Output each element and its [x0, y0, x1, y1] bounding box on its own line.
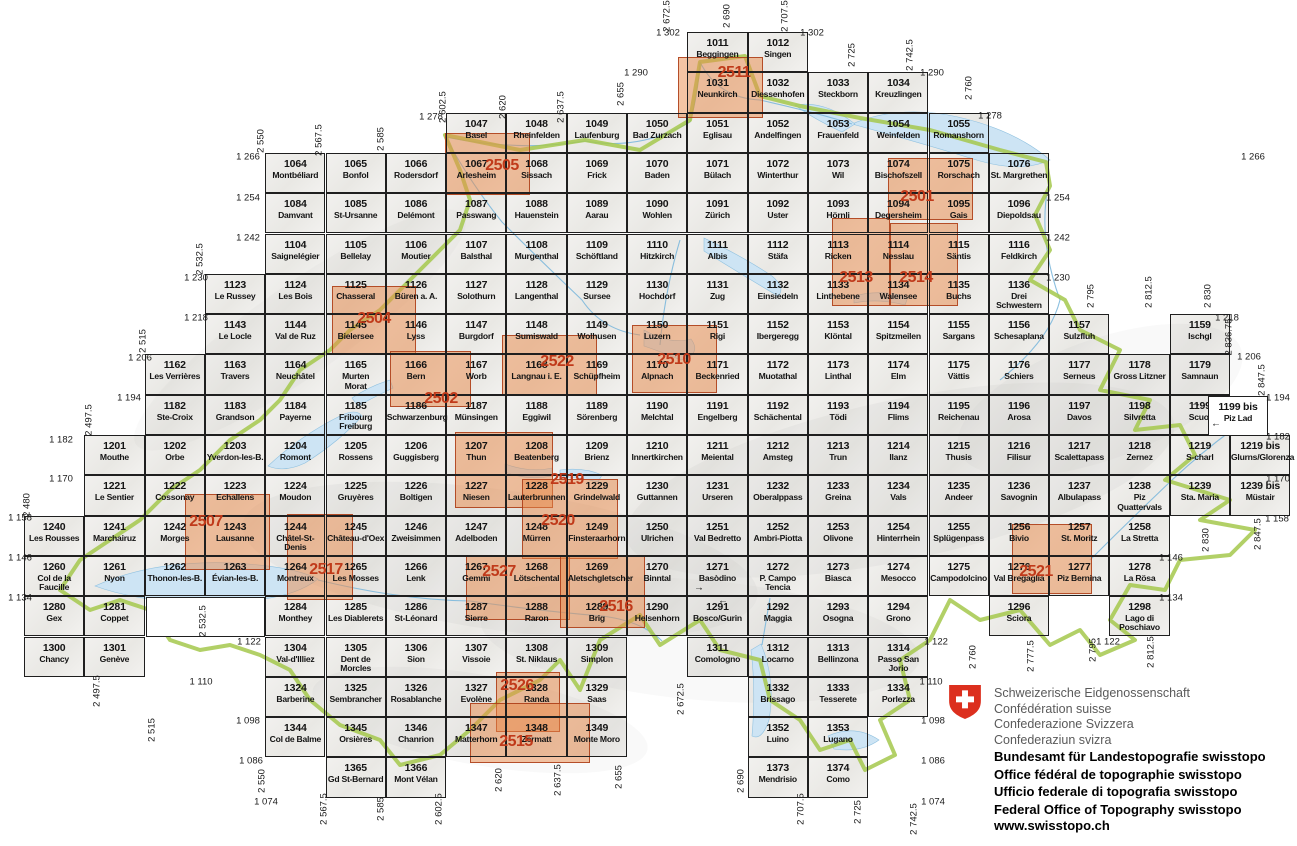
- map-sheet-cell[interactable]: 1274Mesocco: [868, 556, 928, 596]
- sheet-number: 1280: [25, 602, 83, 613]
- sheet-number: 1274: [869, 562, 927, 573]
- sheet-number: 1254: [869, 522, 927, 533]
- map-sheet-cell[interactable]: 1092Uster: [748, 193, 808, 233]
- map-sheet-cell[interactable]: 1296Sciora: [989, 596, 1049, 636]
- sheet-name: Hörnli: [809, 211, 867, 220]
- map-sheet-cell[interactable]: 1217Scalettapass: [1049, 435, 1109, 475]
- map-sheet-cell[interactable]: 1294Grono: [868, 596, 928, 636]
- map-sheet-cell[interactable]: 1165Murten Morat: [326, 354, 386, 394]
- easting-coordinate-label: 2 830: [1201, 528, 1212, 552]
- map-sheet-cell[interactable]: 1172Muotathal: [748, 354, 808, 394]
- map-sheet-cell[interactable]: 1093Hörnli: [808, 193, 868, 233]
- sheet-name: Neunkirch: [688, 90, 746, 99]
- map-sheet-cell[interactable]: 1288Raron: [506, 596, 566, 636]
- map-sheet-cell[interactable]: 1072Winterthur: [748, 153, 808, 193]
- map-sheet-cell[interactable]: 1127Solothurn: [446, 274, 506, 314]
- map-sheet-cell[interactable]: 1253Olivone: [808, 516, 868, 556]
- map-sheet-cell[interactable]: 1258La Stretta: [1109, 516, 1169, 556]
- map-sheet-cell[interactable]: 1203Yverdon-les-B.: [205, 435, 265, 475]
- map-sheet-cell[interactable]: 1231Urseren: [687, 475, 747, 515]
- map-sheet-cell[interactable]: 1125Chasseral: [326, 274, 386, 314]
- map-sheet-cell[interactable]: 1262Thonon-les-B.: [145, 556, 205, 596]
- map-sheet-cell[interactable]: 1239Sta. Maria: [1170, 475, 1230, 515]
- sheet-name: Rigi: [688, 332, 746, 341]
- map-sheet-cell[interactable]: 1086Delémont: [386, 193, 446, 233]
- map-sheet-cell[interactable]: 1136Drei Schwestern: [989, 274, 1049, 314]
- map-sheet-cell[interactable]: 1184Payerne: [265, 395, 325, 435]
- sheet-number: 1130: [628, 280, 686, 291]
- map-sheet-cell[interactable]: 1374Como: [808, 757, 868, 797]
- map-sheet-cell[interactable]: 1166Bern: [386, 354, 446, 394]
- sheet-name: Langenthal: [507, 292, 565, 301]
- map-sheet-cell[interactable]: 1210Innertkirchen: [627, 435, 687, 475]
- map-sheet-cell[interactable]: 1154Spitzmeilen: [868, 314, 928, 354]
- map-sheet-cell[interactable]: 1246Zweisimmen: [386, 516, 446, 556]
- map-sheet-cell[interactable]: 1293Osogna: [808, 596, 868, 636]
- sheet-number: 1270: [628, 562, 686, 573]
- map-sheet-cell[interactable]: 1226Boltigen: [386, 475, 446, 515]
- map-sheet-cell[interactable]: 1128Langenthal: [506, 274, 566, 314]
- sheet-number: 1333: [809, 683, 867, 694]
- map-sheet-cell[interactable]: 1174Elm: [868, 354, 928, 394]
- map-sheet-cell[interactable]: 1307Vissoie: [446, 637, 506, 677]
- map-sheet-cell[interactable]: 1255Splügenpass: [929, 516, 989, 556]
- map-sheet-cell[interactable]: 1198Silvretta: [1109, 395, 1169, 435]
- map-sheet-cell[interactable]: 1309Simplon: [567, 637, 627, 677]
- sheet-name: Sembrancher: [327, 695, 385, 704]
- sheet-number: 1146: [387, 320, 445, 331]
- sheet-name: Chancy: [25, 655, 83, 664]
- map-sheet-cell[interactable]: 1178Gross Litzner: [1109, 354, 1169, 394]
- sheet-name: Worb: [447, 372, 505, 381]
- map-sheet-cell[interactable]: 1292Maggia: [748, 596, 808, 636]
- sheet-name: Glurns/Glorenza: [1231, 453, 1289, 462]
- map-sheet-cell[interactable]: 1191Engelberg: [687, 395, 747, 435]
- map-sheet-cell[interactable]: 1275Campodolcino: [929, 556, 989, 596]
- sheet-name: Schächental: [749, 413, 807, 422]
- map-sheet-cell[interactable]: 1112Stäfa: [748, 234, 808, 274]
- sheet-name: Wil: [809, 171, 867, 180]
- map-sheet-cell[interactable]: 1312Locarno: [748, 637, 808, 677]
- map-sheet-cell[interactable]: 1308St. Niklaus: [506, 637, 566, 677]
- sheet-name: Laufenburg: [568, 131, 626, 140]
- map-sheet-cell[interactable]: 1269Aletschgletscher: [567, 556, 627, 596]
- map-sheet-cell[interactable]: 1115Säntis: [929, 234, 989, 274]
- map-sheet-cell[interactable]: 1195Reichenau: [929, 395, 989, 435]
- map-sheet-cell[interactable]: 1366Mont Vélan: [386, 757, 446, 797]
- map-sheet-cell[interactable]: 1327Evolène: [446, 677, 506, 717]
- easting-coordinate-label: 2 672.5: [676, 683, 687, 715]
- map-sheet-cell[interactable]: 1222Cossonay: [145, 475, 205, 515]
- map-sheet-cell[interactable]: 1233Greina: [808, 475, 868, 515]
- map-sheet-cell[interactable]: 1193Tödi: [808, 395, 868, 435]
- map-sheet-cell[interactable]: 1131Zug: [687, 274, 747, 314]
- sheet-name: Grindelwald: [568, 493, 626, 502]
- map-sheet-cell[interactable]: 1216Filisur: [989, 435, 1049, 475]
- map-sheet-cell[interactable]: 1110Hitzkirch: [627, 234, 687, 274]
- map-sheet-cell[interactable]: 1329Saas: [567, 677, 627, 717]
- sheet-name: Bad Zurzach: [628, 131, 686, 140]
- map-sheet-cell[interactable]: 1211Meiental: [687, 435, 747, 475]
- map-sheet-cell[interactable]: 1236Savognin: [989, 475, 1049, 515]
- map-sheet-cell[interactable]: 1260Col de la Faucille: [24, 556, 84, 596]
- swisstopo-url[interactable]: www.swisstopo.ch: [994, 818, 1110, 833]
- map-sheet-cell[interactable]: 1095Gais: [929, 193, 989, 233]
- map-sheet-cell[interactable]: 1325Sembrancher: [326, 677, 386, 717]
- map-sheet-cell[interactable]: 1349Monte Moro: [567, 717, 627, 757]
- map-sheet-cell[interactable]: 1065Bonfol: [326, 153, 386, 193]
- map-sheet-cell[interactable]: 1091Zürich: [687, 193, 747, 233]
- map-sheet-cell[interactable]: 1251Val Bedretto: [687, 516, 747, 556]
- map-sheet-cell[interactable]: 1247Adelboden: [446, 516, 506, 556]
- map-sheet-cell[interactable]: 1353Lugano: [808, 717, 868, 757]
- map-sheet-cell[interactable]: 1049Laufenburg: [567, 113, 627, 153]
- sheet-name: Nyon: [85, 574, 143, 583]
- map-sheet-cell[interactable]: 1176Schiers: [989, 354, 1049, 394]
- map-sheet-cell[interactable]: 1183Grandson: [205, 395, 265, 435]
- composite-sheet-number[interactable]: 2507: [189, 513, 223, 531]
- map-sheet-cell[interactable]: 1052Andelfingen: [748, 113, 808, 153]
- sheet-number: 1288: [507, 602, 565, 613]
- sheet-name: Neuchâtel: [266, 372, 324, 381]
- map-sheet-cell[interactable]: 1124Les Bois: [265, 274, 325, 314]
- map-sheet-cell[interactable]: 1272P. Campo Tencia: [748, 556, 808, 596]
- map-sheet-cell[interactable]: 1273Biasca: [808, 556, 868, 596]
- map-sheet-cell[interactable]: 1245Château-d'Oex: [326, 516, 386, 556]
- composite-sheet-number[interactable]: 2504: [357, 310, 391, 328]
- sheet-number: 1237: [1050, 481, 1108, 492]
- map-sheet-cell[interactable]: 1234Vals: [868, 475, 928, 515]
- map-sheet-cell[interactable]: 1051Eglisau: [687, 113, 747, 153]
- map-sheet-cell[interactable]: 1313Bellinzona: [808, 637, 868, 677]
- map-sheet-cell[interactable]: 1177Serneus: [1049, 354, 1109, 394]
- composite-sheet-number[interactable]: 2527: [482, 563, 516, 581]
- sheet-name: Ricken: [809, 252, 867, 261]
- map-sheet-cell[interactable]: 1163Travers: [205, 354, 265, 394]
- map-sheet-cell[interactable]: 1104Saignelégier: [265, 234, 325, 274]
- map-sheet-cell[interactable]: 1088Hauenstein: [506, 193, 566, 233]
- map-sheet-cell[interactable]: 1196Arosa: [989, 395, 1049, 435]
- map-sheet-cell[interactable]: 1146Lyss: [386, 314, 446, 354]
- map-sheet-cell-offset[interactable]: 1199 bisPiz Lad: [1208, 396, 1268, 436]
- sheet-number: 1184: [266, 401, 324, 412]
- map-sheet-cell[interactable]: 1218Zernez: [1109, 435, 1169, 475]
- map-sheet-cell[interactable]: 1344Col de Balme: [265, 717, 325, 757]
- map-sheet-cell[interactable]: 1190Melchtal: [627, 395, 687, 435]
- map-sheet-cell[interactable]: 1155Sargans: [929, 314, 989, 354]
- map-sheet-cell[interactable]: 1232Oberalppass: [748, 475, 808, 515]
- sheet-name: Genève: [85, 655, 143, 664]
- map-sheet-cell[interactable]: 1173Linthal: [808, 354, 868, 394]
- map-sheet-cell[interactable]: 1352Luino: [748, 717, 808, 757]
- sheet-name: Guttannen: [628, 493, 686, 502]
- map-sheet-cell[interactable]: 1332Brissago: [748, 677, 808, 717]
- sheet-number: 1195: [930, 401, 988, 412]
- map-sheet-cell[interactable]: 1129Sursee: [567, 274, 627, 314]
- map-sheet-cell[interactable]: 1285Les Diablerets: [326, 596, 386, 636]
- sheet-number: 1325: [327, 683, 385, 694]
- sheet-name: Schwarzenburg: [387, 413, 445, 422]
- map-sheet-cell[interactable]: 1208Beatenberg: [506, 435, 566, 475]
- map-sheet-cell[interactable]: 1305Dent de Morcles: [326, 637, 386, 677]
- map-sheet-cell[interactable]: 1066Rodersdorf: [386, 153, 446, 193]
- map-sheet-cell[interactable]: 1314Passo San Jorio: [868, 637, 928, 677]
- map-sheet-cell[interactable]: 1221Le Sentier: [84, 475, 144, 515]
- map-sheet-cell[interactable]: 1106Moutier: [386, 234, 446, 274]
- map-sheet-cell[interactable]: 1147Burgdorf: [446, 314, 506, 354]
- composite-sheet-number[interactable]: 2519: [550, 471, 584, 489]
- map-sheet-cell[interactable]: 1214Ilanz: [868, 435, 928, 475]
- sheet-name: Luino: [749, 735, 807, 744]
- map-sheet-cell[interactable]: 1373Mendrisio: [748, 757, 808, 797]
- sheet-number: 1218: [1110, 441, 1168, 452]
- map-sheet-cell[interactable]: 1144Val de Ruz: [265, 314, 325, 354]
- map-sheet-cell[interactable]: 1182Ste-Croix: [145, 395, 205, 435]
- map-sheet-cell[interactable]: 1132Einsiedeln: [748, 274, 808, 314]
- map-sheet-cell[interactable]: 1126Büren a. A.: [386, 274, 446, 314]
- map-sheet-cell[interactable]: 1230Guttannen: [627, 475, 687, 515]
- northing-coordinate-label: 1 134: [8, 593, 32, 604]
- map-sheet-cell[interactable]: 1311Comologno: [687, 637, 747, 677]
- map-sheet-cell[interactable]: 1212Amsteg: [748, 435, 808, 475]
- map-sheet-cell[interactable]: 1185Fribourg Freiburg: [326, 395, 386, 435]
- composite-sheet-number[interactable]: 2520: [541, 512, 575, 530]
- map-sheet-cell[interactable]: 1238Piz Quattervals: [1109, 475, 1169, 515]
- map-sheet-cell[interactable]: 1012Singen: [748, 32, 808, 72]
- map-sheet-cell[interactable]: 1130Hochdorf: [627, 274, 687, 314]
- sheet-number: 1273: [809, 562, 867, 573]
- map-sheet-cell[interactable]: 1070Baden: [627, 153, 687, 193]
- map-sheet-cell[interactable]: 1149Wolhusen: [567, 314, 627, 354]
- map-sheet-cell[interactable]: 1073Wil: [808, 153, 868, 193]
- sheet-number: 1250: [628, 522, 686, 533]
- sheet-name: Buchs: [930, 292, 988, 301]
- sheet-number: 1106: [387, 240, 445, 251]
- composite-sheet-number[interactable]: 2516: [599, 598, 633, 616]
- map-sheet-cell[interactable]: 1270Binntal: [627, 556, 687, 596]
- sheet-number: 1155: [930, 320, 988, 331]
- map-sheet-cell[interactable]: 1266Lenk: [386, 556, 446, 596]
- map-sheet-cell[interactable]: 1213Trun: [808, 435, 868, 475]
- map-sheet-cell[interactable]: 1089Aarau: [567, 193, 627, 233]
- map-sheet-cell[interactable]: 1151Rigi: [687, 314, 747, 354]
- sheet-name: Sulzfluh: [1050, 332, 1108, 341]
- map-sheet-cell[interactable]: 1164Neuchâtel: [265, 354, 325, 394]
- map-sheet-cell[interactable]: 1244Châtel-St-Denis: [265, 516, 325, 556]
- sheet-number: 1221: [85, 481, 143, 492]
- sheet-name: Engelberg: [688, 413, 746, 422]
- sheet-name: Rheinfelden: [507, 131, 565, 140]
- map-sheet-cell[interactable]: 1281Coppet: [84, 596, 144, 636]
- map-sheet-cell[interactable]: 1123Le Russey: [205, 274, 265, 314]
- map-sheet-cell[interactable]: 1223Echallens: [205, 475, 265, 515]
- map-sheet-cell[interactable]: 1033Steckborn: [808, 72, 868, 112]
- map-sheet-cell[interactable]: 1071Bülach: [687, 153, 747, 193]
- map-sheet-cell[interactable]: 1225Gruyères: [326, 475, 386, 515]
- map-sheet-cell[interactable]: 1143Le Locle: [205, 314, 265, 354]
- map-sheet-cell[interactable]: 1109Schöftland: [567, 234, 627, 274]
- sheet-name: Sion: [387, 655, 445, 664]
- map-sheet-cell[interactable]: 1179Samnaun: [1170, 354, 1230, 394]
- composite-sheet-number[interactable]: 2522: [540, 353, 574, 371]
- northing-coordinate-label: 1 146: [8, 553, 32, 564]
- map-sheet-index: Schweizerische Eidgenossenschaft Confédé…: [0, 0, 1297, 846]
- map-sheet-cell[interactable]: 1324Barberine: [265, 677, 325, 717]
- map-sheet-cell[interactable]: 1290Helsenhorn: [627, 596, 687, 636]
- map-sheet-cell[interactable]: 1188Eggiwil: [506, 395, 566, 435]
- map-sheet-cell[interactable]: 1345Orsières: [326, 717, 386, 757]
- map-sheet-cell[interactable]: 1284Monthey: [265, 596, 325, 636]
- map-sheet-cell[interactable]: 1064Montbéliard: [265, 153, 325, 193]
- map-sheet-cell[interactable]: 1085St-Ursanne: [326, 193, 386, 233]
- map-sheet-cell[interactable]: 1254Hinterrhein: [868, 516, 928, 556]
- map-sheet-cell[interactable]: 1250Ulrichen: [627, 516, 687, 556]
- sheet-number: 1109: [568, 240, 626, 251]
- map-sheet-cell[interactable]: 1252Ambri-Piotta: [748, 516, 808, 556]
- map-sheet-cell[interactable]: 1347Matterhorn: [446, 717, 506, 757]
- map-sheet-cell[interactable]: 1050Bad Zurzach: [627, 113, 687, 153]
- map-sheet-cell[interactable]: 1207Thun: [446, 435, 506, 475]
- map-sheet-cell[interactable]: 1206Guggisberg: [386, 435, 446, 475]
- sheet-extent-arrow-icon: ←: [718, 596, 728, 607]
- map-sheet-cell[interactable]: 1219S-charl: [1170, 435, 1230, 475]
- sheet-name: Le Sentier: [85, 493, 143, 502]
- sheet-number: 1074: [869, 159, 927, 170]
- northing-coordinate-label: 1 122: [924, 637, 948, 648]
- sheet-name: Piz Bernina: [1050, 574, 1108, 583]
- map-sheet-cell[interactable]: 1116Feldkirch: [989, 234, 1049, 274]
- composite-sheet-number[interactable]: 2505: [485, 157, 519, 175]
- sheet-number: 1153: [809, 320, 867, 331]
- sheet-name: Alpnach: [628, 372, 686, 381]
- map-sheet-cell[interactable]: 1304Val-d'Illiez: [265, 637, 325, 677]
- easting-coordinate-label: 2 637.5: [553, 764, 564, 796]
- map-sheet-cell[interactable]: 1162Les Verrières: [145, 354, 205, 394]
- map-sheet-cell[interactable]: 1175Vättis: [929, 354, 989, 394]
- map-sheet-cell[interactable]: 1114Nesslau: [868, 234, 928, 274]
- map-sheet-cell[interactable]: 1157Sulzfluh: [1049, 314, 1109, 354]
- map-sheet-cell[interactable]: 1227Niesen: [446, 475, 506, 515]
- map-sheet-cell[interactable]: 1249Finsteraarhorn: [567, 516, 627, 556]
- composite-sheet-number[interactable]: 2502: [424, 390, 458, 408]
- map-sheet-cell[interactable]: 1301Genève: [84, 637, 144, 677]
- map-sheet-cell[interactable]: 1333Tesserete: [808, 677, 868, 717]
- map-sheet-cell[interactable]: 1113Ricken: [808, 234, 868, 274]
- map-sheet-cell[interactable]: 1108Murgenthal: [506, 234, 566, 274]
- map-sheet-cell[interactable]: 1053Frauenfeld: [808, 113, 868, 153]
- map-sheet-cell[interactable]: 1194Flims: [868, 395, 928, 435]
- composite-sheet-number[interactable]: 2501: [900, 188, 934, 206]
- map-sheet-cell[interactable]: 1261Nyon: [84, 556, 144, 596]
- map-sheet-cell[interactable]: 1090Wohlen: [627, 193, 687, 233]
- map-sheet-cell[interactable]: 1169Schüpfheim: [567, 354, 627, 394]
- sheet-name: Zug: [688, 292, 746, 301]
- map-sheet-cell[interactable]: 1156Schesaplana: [989, 314, 1049, 354]
- sheet-name: Lauterbrunnen: [507, 493, 565, 502]
- map-sheet-cell[interactable]: 1306Sion: [386, 637, 446, 677]
- map-sheet-cell[interactable]: 1326Rosablanche: [386, 677, 446, 717]
- sheet-number: 1123: [206, 280, 264, 291]
- map-sheet-cell[interactable]: 1346Chanrion: [386, 717, 446, 757]
- sheet-number: 1206: [387, 441, 445, 452]
- map-sheet-cell[interactable]: 1300Chancy: [24, 637, 84, 677]
- map-sheet-cell[interactable]: 1171Beckenried: [687, 354, 747, 394]
- map-sheet-cell[interactable]: 1107Balsthal: [446, 234, 506, 274]
- map-sheet-cell[interactable]: 1069Frick: [567, 153, 627, 193]
- sheet-number: 1235: [930, 481, 988, 492]
- map-sheet-cell[interactable]: 1054Weinfelden: [868, 113, 928, 153]
- map-sheet-cell[interactable]: 1235Andeer: [929, 475, 989, 515]
- composite-sheet-number[interactable]: 2514: [899, 269, 933, 287]
- map-sheet-cell[interactable]: 1201Mouthe: [84, 435, 144, 475]
- map-sheet-cell[interactable]: 1105Bellelay: [326, 234, 386, 274]
- map-sheet-cell[interactable]: 1087Passwang: [446, 193, 506, 233]
- map-sheet-cell[interactable]: 1209Brienz: [567, 435, 627, 475]
- map-sheet-cell[interactable]: 1263Évian-les-B.: [205, 556, 265, 596]
- map-sheet-cell[interactable]: 1197Davos: [1049, 395, 1109, 435]
- composite-sheet-number[interactable]: 2526: [500, 677, 534, 695]
- map-sheet-cell[interactable]: 1241Marchairuz: [84, 516, 144, 556]
- map-sheet-cell[interactable]: 1215Thusis: [929, 435, 989, 475]
- map-sheet-cell[interactable]: 1286St-Léonard: [386, 596, 446, 636]
- sheet-name: Murten Morat: [327, 372, 385, 390]
- map-sheet-cell[interactable]: 1076St. Margrethen: [989, 153, 1049, 193]
- map-sheet-cell[interactable]: 1084Damvant: [265, 193, 325, 233]
- map-sheet-cell[interactable]: 1237Albulapass: [1049, 475, 1109, 515]
- map-sheet-cell[interactable]: 1205Rossens: [326, 435, 386, 475]
- sheet-number: 1131: [688, 280, 746, 291]
- map-sheet-cell[interactable]: 1192Schächental: [748, 395, 808, 435]
- sheet-number: 1163: [206, 360, 264, 371]
- map-sheet-cell[interactable]: 1167Worb: [446, 354, 506, 394]
- easting-coordinate-label: 2 515: [147, 718, 158, 742]
- map-sheet-cell[interactable]: 1096Diepoldsau: [989, 193, 1049, 233]
- map-sheet-cell[interactable]: 1150Luzern: [627, 314, 687, 354]
- composite-sheet-number[interactable]: 2515: [499, 733, 533, 751]
- sheet-number: 1212: [749, 441, 807, 452]
- map-sheet-cell[interactable]: 1277Piz Bernina: [1049, 556, 1109, 596]
- map-sheet-cell[interactable]: 1075Rorschach: [929, 153, 989, 193]
- map-sheet-cell[interactable]: 1365Gd St-Bernard: [326, 757, 386, 797]
- map-sheet-cell[interactable]: 1202Orbe: [145, 435, 205, 475]
- map-sheet-cell[interactable]: 1257St. Moritz: [1049, 516, 1109, 556]
- sheet-name: Drei Schwestern: [990, 292, 1048, 310]
- map-sheet-cell[interactable]: 1240Les Rousses: [24, 516, 84, 556]
- map-sheet-cell[interactable]: 1287Sierre: [446, 596, 506, 636]
- map-sheet-cell[interactable]: 1280Gex: [24, 596, 84, 636]
- composite-sheet-number[interactable]: 2513: [839, 269, 873, 287]
- map-sheet-cell[interactable]: 1111Albis: [687, 234, 747, 274]
- composite-sheet-number[interactable]: 2517: [309, 561, 343, 579]
- map-sheet-cell[interactable]: 1224Moudon: [265, 475, 325, 515]
- map-sheet-cell[interactable]: 1032Diessenhofen: [748, 72, 808, 112]
- easting-coordinate-label: 2 760: [968, 645, 979, 669]
- map-sheet-cell[interactable]: 1256Bivio: [989, 516, 1049, 556]
- sheet-name: Boltigen: [387, 493, 445, 502]
- composite-sheet-number[interactable]: 2510: [657, 351, 691, 369]
- map-sheet-cell[interactable]: 1135Buchs: [929, 274, 989, 314]
- sheet-name: Säntis: [930, 252, 988, 261]
- map-sheet-cell[interactable]: 1153Klöntal: [808, 314, 868, 354]
- map-sheet-cell[interactable]: 1148Sumiswald: [506, 314, 566, 354]
- sheet-number: 1053: [809, 119, 867, 130]
- composite-sheet-number[interactable]: 2511: [718, 64, 751, 82]
- map-sheet-cell[interactable]: 1189Sörenberg: [567, 395, 627, 435]
- map-sheet-cell[interactable]: 1204Romont: [265, 435, 325, 475]
- map-sheet-cell[interactable]: 1152Ibergeregg: [748, 314, 808, 354]
- easting-coordinate-label: 2 637.5: [556, 91, 567, 123]
- composite-sheet-number[interactable]: 2521: [1019, 563, 1053, 581]
